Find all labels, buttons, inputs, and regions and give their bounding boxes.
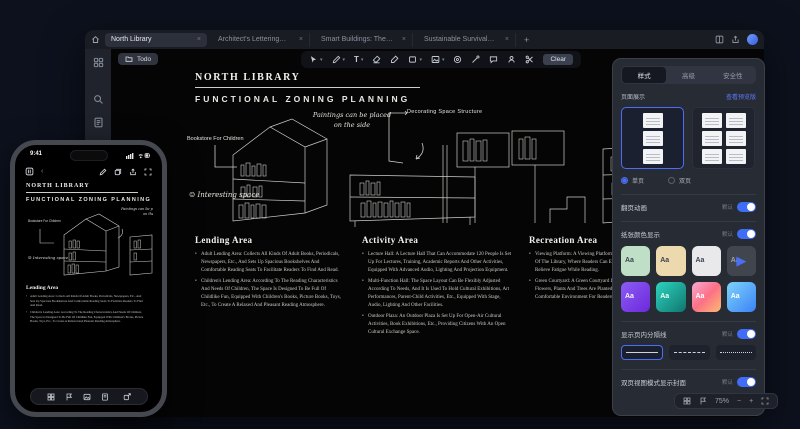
flag-icon[interactable]	[699, 397, 707, 405]
fit-screen-icon[interactable]	[761, 397, 769, 405]
phone-annotation-interesting: ☺ Interesting space	[28, 255, 68, 260]
upload-tool[interactable]	[507, 55, 516, 64]
preview-section-label: 页面展示	[621, 92, 645, 101]
tab-bar: North Library × Architect's Lettering… ×…	[85, 30, 764, 49]
scissors-tool[interactable]	[525, 55, 534, 64]
phone-annotation-bookstore: Bookstore For Children	[28, 219, 61, 223]
bookmark-flag-icon[interactable]	[65, 393, 73, 401]
text-tool[interactable]: T▾	[354, 55, 363, 64]
apps-grid-icon[interactable]	[93, 57, 104, 68]
status-time: 9:41	[30, 151, 42, 157]
tab-architects-lettering[interactable]: Architect's Lettering… ×	[212, 33, 310, 47]
zoom-percent: 75%	[715, 398, 729, 405]
radio-dot	[621, 177, 628, 184]
settings-panel: 样式 高级 安全性 页面展示 查看预览版 单页 双页 翻页动画 默认 纸张颜色显…	[612, 58, 765, 416]
theme-tile-blue[interactable]: Aa	[727, 282, 756, 312]
export-icon[interactable]	[129, 168, 137, 176]
theme-tile-teal[interactable]: Aa	[656, 282, 685, 312]
phone-mockup: 9:41 ‹ NORTH LIBRARY FUNCTIONAL ZONING P…	[10, 140, 167, 417]
todo-label: Todo	[137, 56, 151, 63]
status-icons	[126, 152, 150, 159]
panel-tab-security[interactable]: 安全性	[711, 67, 755, 83]
smiley-icon: ☺	[189, 191, 195, 199]
panel-tab-advanced[interactable]: 高级	[666, 67, 710, 83]
phone-doc-subtitle: FUNCTIONAL ZONING PLANNING	[26, 197, 153, 203]
column-heading: Lending Area	[195, 235, 345, 245]
double-page-thumbnail[interactable]	[692, 107, 755, 169]
theme-tiles: Aa Aa Aa Aa▶ Aa Aa Aa Aa	[621, 246, 756, 312]
radio-single-page[interactable]: 单页	[621, 176, 644, 185]
divider-line-toggle[interactable]	[737, 329, 756, 339]
panel-tab-style[interactable]: 样式	[622, 67, 666, 83]
todo-pill[interactable]: Todo	[118, 53, 158, 65]
preview-link[interactable]: 查看预览版	[726, 92, 756, 101]
theme-tile-purple[interactable]: Aa	[621, 282, 650, 312]
line-style-options	[621, 345, 756, 360]
theme-tile-tan[interactable]: Aa	[656, 246, 685, 276]
annotation-interesting: ☺ Interesting space	[189, 191, 259, 199]
radio-dot	[668, 177, 675, 184]
tab-close-icon[interactable]: ×	[505, 36, 509, 43]
tab-north-library[interactable]: North Library ×	[105, 33, 207, 47]
pen-icon[interactable]	[99, 168, 107, 176]
annotation-decorating: Decorating Space Structure	[407, 109, 482, 115]
tab-smart-buildings[interactable]: Smart Buildings: The… ×	[315, 33, 413, 47]
notes-icon[interactable]	[101, 393, 109, 401]
line-style-solid[interactable]	[621, 345, 663, 360]
pen-tool[interactable]: ▾	[332, 55, 346, 64]
theme-tile-video[interactable]: Aa▶	[727, 246, 756, 276]
phone-toolbar: ‹	[25, 167, 152, 176]
phone-columns: Lending Area Adult Lending Area: Collect…	[26, 285, 153, 326]
eraser-tool[interactable]	[372, 55, 381, 64]
comment-tool[interactable]	[489, 55, 498, 64]
phone-dock	[30, 388, 148, 405]
toggle-divider-line: 显示页内分隔线 默认	[621, 329, 756, 339]
title-rule	[195, 87, 420, 88]
line-style-dashed[interactable]	[669, 345, 709, 360]
layout-icon[interactable]	[715, 35, 724, 44]
theme-tile-green[interactable]: Aa	[621, 246, 650, 276]
single-page-thumbnail[interactable]	[621, 107, 684, 169]
tab-label: Sustainable Survival…	[424, 36, 494, 43]
column-lending-area: Lending Area Adult Lending Area: Collect…	[195, 235, 345, 340]
theme-tile-pink[interactable]: Aa	[692, 282, 721, 312]
shape-tool[interactable]: ▾	[408, 55, 422, 64]
toggle-paper-color: 纸张颜色显示 默认	[621, 229, 756, 239]
tab-label: Smart Buildings: The…	[321, 36, 393, 43]
folder-icon	[125, 55, 133, 63]
annotation-bookstore: Bookstore For Children	[187, 136, 244, 142]
tab-sustainable-survival[interactable]: Sustainable Survival… ×	[418, 33, 516, 47]
document-icon[interactable]	[93, 117, 104, 128]
fullscreen-icon[interactable]	[144, 168, 152, 176]
play-icon: ▶	[727, 246, 756, 276]
bullet: Lecture Hall: A Lecture Hall That Can Ac…	[362, 251, 512, 275]
cover-display-toggle[interactable]	[737, 377, 756, 387]
column-heading: Activity Area	[362, 235, 512, 245]
bullet: Multi-Function Hall: The Space Layout Ca…	[362, 278, 512, 310]
laser-tool[interactable]	[471, 55, 480, 64]
tab-close-icon[interactable]: ×	[299, 36, 303, 43]
bullet: Adult Lending Area: Collects All Kinds O…	[195, 251, 345, 275]
bullet: Children's Lending Area: According To Th…	[195, 278, 345, 310]
phone-sketch: Bookstore For Children Paintings can be …	[26, 207, 153, 283]
line-style-dotted[interactable]	[716, 345, 756, 360]
theme-tile-light[interactable]: Aa	[692, 246, 721, 276]
zoom-bar: 75% − +	[674, 393, 778, 409]
image-tool[interactable]: ▾	[431, 55, 445, 64]
layout-thumbnails	[621, 107, 756, 169]
new-tab-button[interactable]: +	[521, 35, 532, 45]
toggle-page-animation: 翻页动画 默认	[621, 202, 756, 212]
pages-overview-icon[interactable]	[683, 397, 691, 405]
doc-title: NORTH LIBRARY	[195, 72, 300, 83]
phone-column-heading: Lending Area	[26, 285, 144, 291]
duplicate-icon[interactable]	[114, 168, 122, 176]
share-icon[interactable]	[731, 35, 740, 44]
home-icon[interactable]	[91, 35, 100, 44]
user-avatar[interactable]	[747, 34, 758, 45]
annotation-paintings: Paintings can be placed on the side	[309, 111, 395, 131]
phone-doc-title: NORTH LIBRARY	[26, 183, 153, 189]
dynamic-island	[70, 150, 108, 161]
gallery-icon[interactable]	[83, 393, 91, 401]
tab-close-icon[interactable]: ×	[402, 36, 406, 43]
zoom-out-button[interactable]: −	[737, 398, 741, 405]
drawing-toolbar: ▾ ▾ T▾ ▾ ▾ Clear	[301, 51, 581, 68]
toggle-cover-display: 双页视图模式显示封面 默认	[621, 377, 756, 387]
phone-document[interactable]: NORTH LIBRARY FUNCTIONAL ZONING PLANNING…	[26, 183, 153, 382]
tab-label: North Library	[111, 36, 151, 43]
back-icon[interactable]: ‹	[41, 168, 43, 175]
tab-label: Architect's Lettering…	[218, 36, 286, 43]
radio-double-page[interactable]: 双页	[668, 176, 691, 185]
library-icon[interactable]	[25, 167, 34, 176]
sticker-tool[interactable]	[453, 55, 462, 64]
panel-tabs: 样式 高级 安全性	[621, 66, 756, 84]
share-page-icon[interactable]	[123, 393, 131, 401]
zoom-in-button[interactable]: +	[749, 398, 753, 405]
page-animation-toggle[interactable]	[737, 202, 756, 212]
phone-column-lending: Lending Area Adult Lending Area: Collect…	[26, 285, 144, 326]
paper-color-toggle[interactable]	[737, 229, 756, 239]
clear-button[interactable]: Clear	[543, 54, 573, 65]
bullet: Outdoor Plaza: An Outdoor Plaza Is Set U…	[362, 313, 512, 337]
tab-close-icon[interactable]: ×	[197, 36, 201, 43]
column-activity-area: Activity Area Lecture Hall: A Lecture Ha…	[362, 235, 512, 340]
pages-grid-icon[interactable]	[47, 393, 55, 401]
doc-subtitle: FUNCTIONAL ZONING PLANNING	[195, 94, 410, 104]
phone-annotation-paintings: Paintings can be placed on the side	[118, 207, 153, 217]
highlighter-tool[interactable]	[390, 55, 399, 64]
search-icon[interactable]	[93, 94, 104, 105]
select-tool[interactable]: ▾	[309, 55, 323, 64]
